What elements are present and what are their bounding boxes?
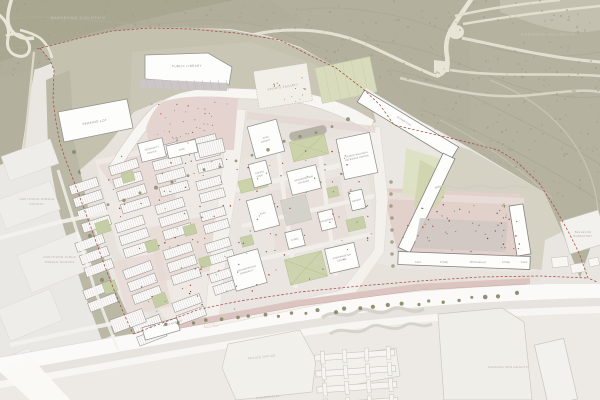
- svg-text:BELLEVUE: BELLEVUE: [575, 230, 592, 234]
- svg-text:CAFE: CAFE: [521, 261, 528, 264]
- svg-text:DAEGWAN MOUNTAIN: DAEGWAN MOUNTAIN: [521, 32, 575, 37]
- svg-text:DORMITORY: DORMITORY: [573, 234, 592, 238]
- svg-text:STORE: STORE: [502, 262, 511, 264]
- svg-text:CAFE: CAFE: [415, 261, 422, 264]
- svg-text:STORE: STORE: [440, 262, 449, 264]
- svg-text:SCHOOL: SCHOOL: [29, 202, 44, 206]
- svg-text:MIDDLE SCHOOL: MIDDLE SCHOOL: [45, 260, 75, 264]
- svg-text:BAEKBONG MOUNTAIN: BAEKBONG MOUNTAIN: [51, 15, 106, 20]
- svg-text:HAKYOUNG GIRLS': HAKYOUNG GIRLS': [43, 255, 77, 259]
- svg-text:RESTAURANT: RESTAURANT: [470, 261, 487, 265]
- svg-text:PUBLIC LIBRARY: PUBLIC LIBRARY: [172, 64, 202, 69]
- svg-text:HAKYOUNG MIDDLE: HAKYOUNG MIDDLE: [19, 197, 54, 201]
- svg-text:HANGANG NEW HEIGHTS: HANGANG NEW HEIGHTS: [488, 365, 528, 369]
